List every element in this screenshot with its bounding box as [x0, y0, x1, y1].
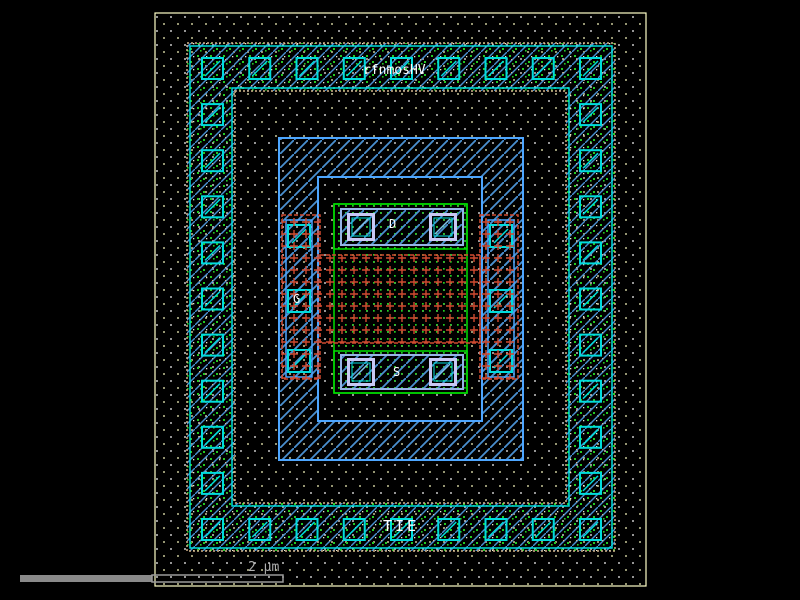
- source-terminal-label: S: [393, 365, 400, 379]
- scale-bar-label: 2 µm: [248, 560, 279, 575]
- poly-channel-region: [320, 255, 480, 343]
- drain-via[interactable]: [431, 215, 456, 240]
- scale-bar-solid-segment: [20, 575, 152, 582]
- layout-drawing[interactable]: rfnmosHV D G S TIE 2 µm: [0, 0, 800, 600]
- layout-viewer-canvas[interactable]: rfnmosHV D G S TIE 2 µm: [0, 0, 800, 600]
- poly-left-bar: [282, 215, 320, 379]
- gate-terminal-label: G: [293, 292, 300, 306]
- source-via[interactable]: [431, 360, 456, 385]
- drain-via[interactable]: [349, 215, 374, 240]
- guard-ring-tie-label: TIE: [383, 517, 419, 535]
- cell-name-label: rfnmosHV: [363, 63, 426, 78]
- poly-right-bar: [480, 215, 518, 379]
- source-metal-bar[interactable]: [341, 355, 463, 389]
- drain-terminal-label: D: [389, 217, 396, 231]
- drain-metal-bar[interactable]: [341, 209, 463, 245]
- source-via[interactable]: [349, 360, 374, 385]
